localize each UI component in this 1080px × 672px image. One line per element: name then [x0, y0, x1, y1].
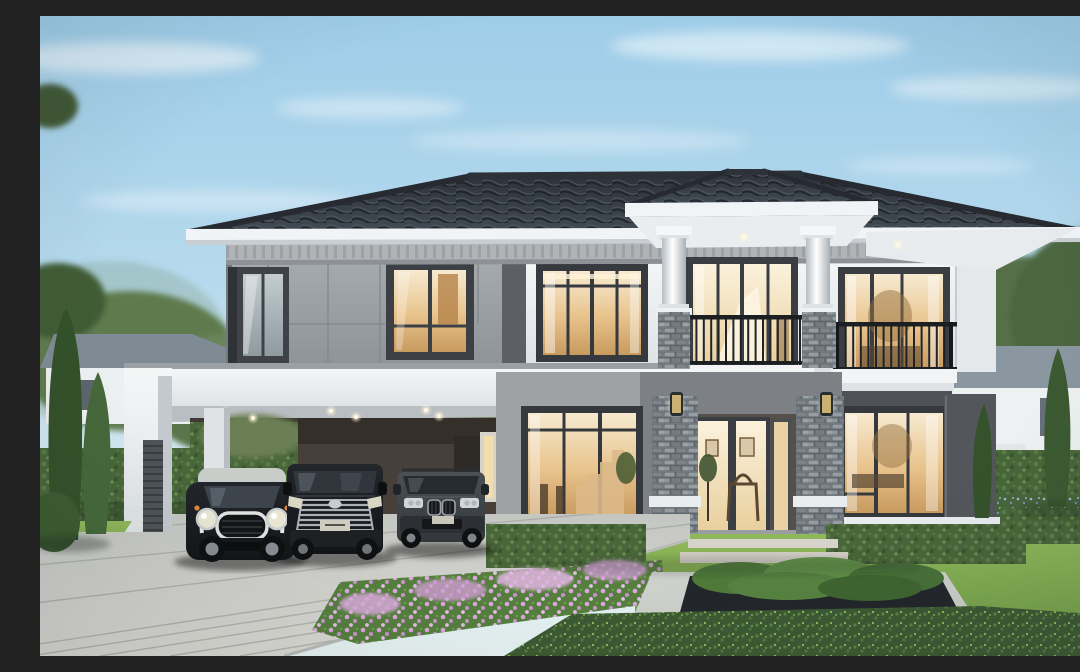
architectural-render: Modern two-storey luxury house exterior …: [40, 16, 1080, 656]
vignette-overlay: [40, 16, 1080, 656]
scene-canvas: Modern two-storey luxury house exterior …: [40, 16, 1080, 656]
